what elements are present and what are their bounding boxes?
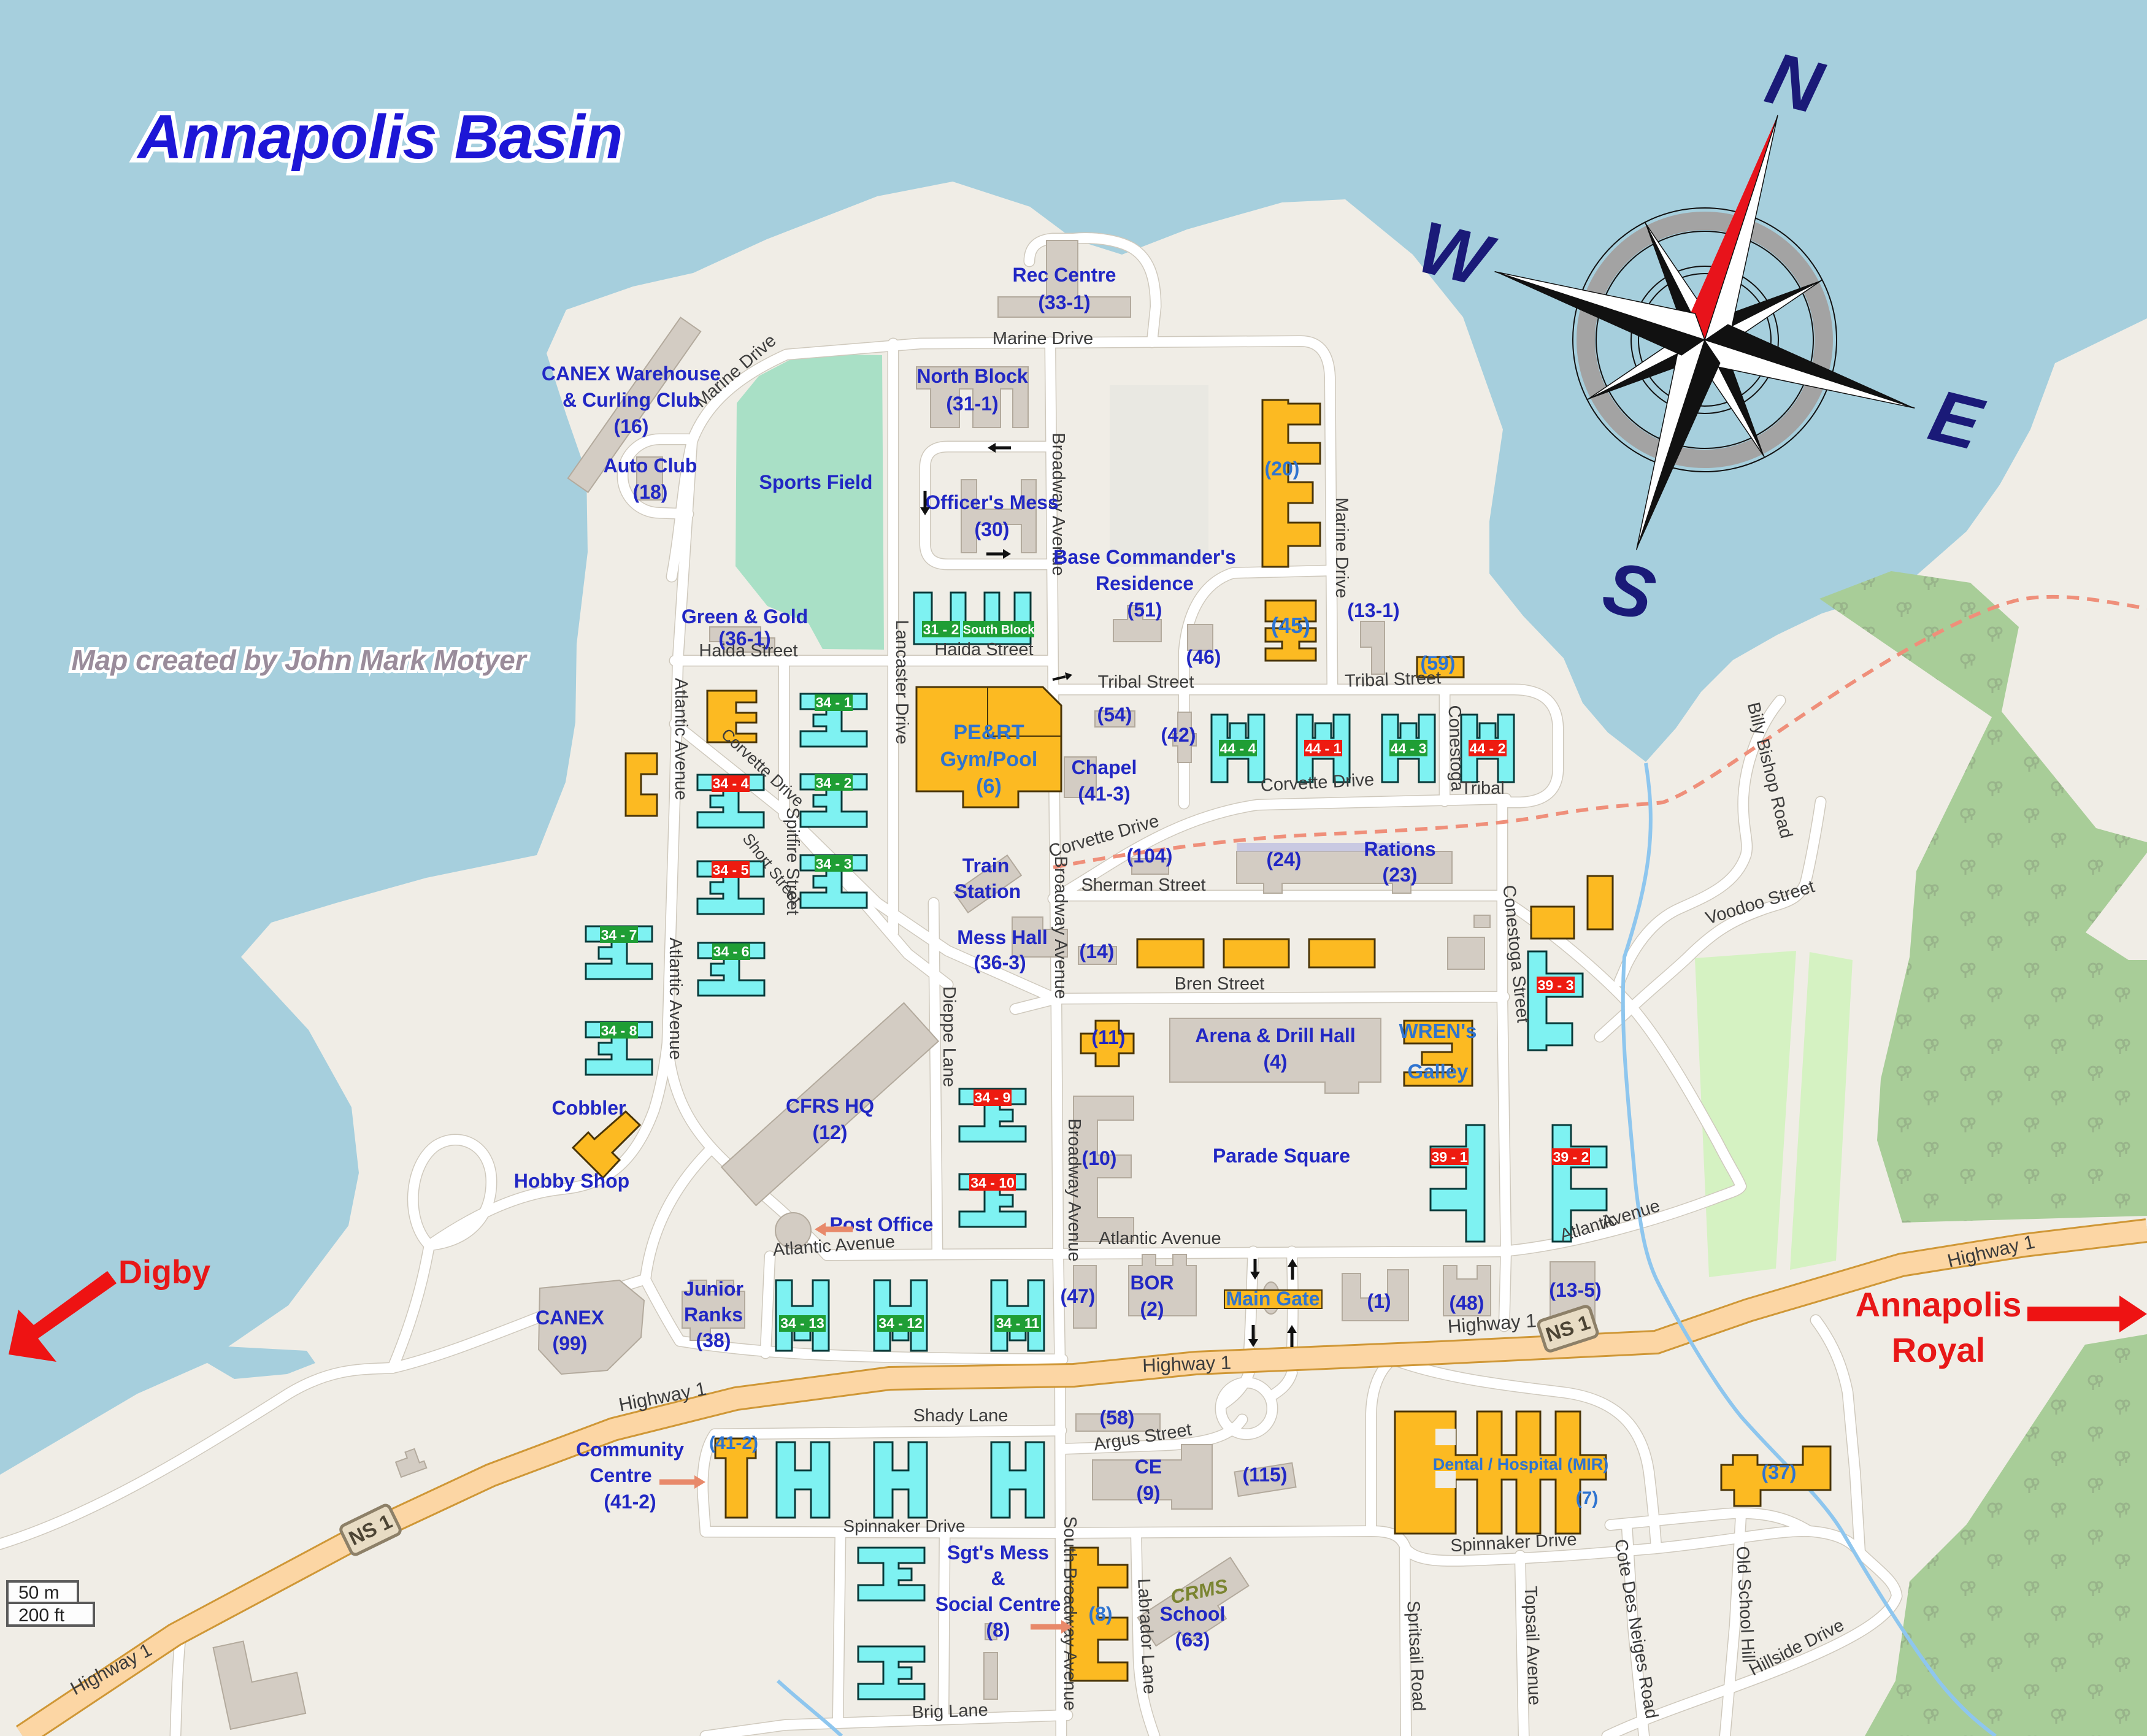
svg-text:(46): (46): [1186, 646, 1221, 668]
svg-text:(41-3): (41-3): [1078, 783, 1130, 805]
svg-text:(37): (37): [1762, 1461, 1797, 1483]
svg-text:34 - 10: 34 - 10: [970, 1175, 1015, 1191]
svg-text:(16): (16): [614, 415, 649, 437]
svg-text:(6): (6): [976, 775, 1002, 798]
svg-text:(7): (7): [1576, 1488, 1599, 1508]
svg-text:34 - 4: 34 - 4: [713, 775, 749, 791]
svg-text:(23): (23): [1383, 864, 1418, 886]
svg-text:39 - 3: 39 - 3: [1538, 977, 1574, 993]
svg-text:Parade Square: Parade Square: [1213, 1145, 1350, 1167]
svg-text:(13-1): (13-1): [1347, 599, 1399, 621]
svg-text:39 - 2: 39 - 2: [1553, 1149, 1589, 1165]
svg-text:Junior: Junior: [683, 1278, 743, 1300]
svg-text:(36-1): (36-1): [718, 628, 770, 650]
svg-text:(51): (51): [1127, 599, 1162, 621]
svg-text:Tribal: Tribal: [1461, 778, 1504, 798]
svg-text:44 - 1: 44 - 1: [1305, 740, 1342, 756]
svg-text:(99): (99): [553, 1332, 588, 1354]
svg-text:(18): (18): [633, 481, 668, 503]
svg-text:Gym/Pool: Gym/Pool: [940, 748, 1038, 771]
svg-text:Atlantic Avenue: Atlantic Avenue: [671, 678, 691, 800]
svg-text:(30): (30): [975, 518, 1010, 540]
svg-text:Broadway Avenue: Broadway Avenue: [1064, 1118, 1084, 1261]
svg-text:(41-2): (41-2): [709, 1433, 758, 1453]
svg-text:Highway 1: Highway 1: [1142, 1351, 1232, 1376]
svg-text:Residence: Residence: [1096, 572, 1194, 594]
svg-text:Main Gate: Main Gate: [1226, 1288, 1320, 1310]
svg-text:Rations: Rations: [1364, 838, 1435, 860]
svg-text:(13-5): (13-5): [1549, 1279, 1601, 1301]
svg-text:Ranks: Ranks: [684, 1304, 743, 1326]
svg-text:Broadway Avenue: Broadway Avenue: [1051, 856, 1070, 999]
svg-text:Annapolis Basin: Annapolis Basin: [136, 103, 623, 172]
svg-text:Sherman Street: Sherman Street: [1081, 875, 1205, 895]
svg-text:& Curling Club: & Curling Club: [563, 389, 700, 411]
svg-text:Auto Club: Auto Club: [604, 455, 697, 477]
svg-text:(4): (4): [1263, 1051, 1287, 1073]
svg-text:50 m: 50 m: [18, 1583, 60, 1603]
svg-text:Social Centre: Social Centre: [935, 1593, 1061, 1615]
svg-text:(36-3): (36-3): [974, 951, 1026, 974]
svg-text:Station: Station: [954, 880, 1021, 902]
svg-text:(24): (24): [1267, 848, 1302, 870]
svg-text:Tribal Street: Tribal Street: [1098, 672, 1194, 692]
svg-text:(8): (8): [986, 1619, 1010, 1641]
svg-text:(41-2): (41-2): [604, 1491, 656, 1513]
svg-text:39 - 1: 39 - 1: [1432, 1149, 1468, 1165]
svg-text:Dental / Hospital (MIR): Dental / Hospital (MIR): [1433, 1455, 1609, 1473]
svg-text:CE: CE: [1135, 1456, 1162, 1478]
svg-text:200 ft: 200 ft: [18, 1605, 65, 1626]
svg-text:North Block: North Block: [916, 365, 1028, 387]
svg-text:Atlantic Avenue: Atlantic Avenue: [666, 937, 685, 1059]
svg-text:(63): (63): [1175, 1629, 1210, 1651]
svg-text:(2): (2): [1140, 1298, 1164, 1320]
svg-text:Green & Gold: Green & Gold: [682, 605, 808, 628]
svg-text:34 - 9: 34 - 9: [975, 1089, 1011, 1105]
svg-text:(47): (47): [1061, 1285, 1096, 1307]
svg-text:Mess Hall: Mess Hall: [957, 926, 1048, 948]
svg-text:Spinnaker Drive: Spinnaker Drive: [843, 1516, 965, 1535]
svg-text:&: &: [991, 1567, 1005, 1589]
svg-text:South Broadway Avenue: South Broadway Avenue: [1060, 1516, 1080, 1710]
svg-text:Haida Street: Haida Street: [934, 640, 1033, 659]
svg-text:CANEX Warehouse: CANEX Warehouse: [542, 363, 721, 385]
svg-text:Marine Drive: Marine Drive: [993, 329, 1093, 348]
svg-text:34 - 2: 34 - 2: [816, 775, 852, 791]
svg-text:South Block: South Block: [963, 623, 1035, 637]
svg-text:44 - 4: 44 - 4: [1220, 740, 1256, 756]
svg-text:Sgt's Mess: Sgt's Mess: [947, 1542, 1049, 1564]
svg-text:Lancaster Drive: Lancaster Drive: [892, 620, 912, 744]
svg-text:(58): (58): [1100, 1407, 1135, 1429]
svg-text:Train: Train: [962, 855, 1009, 877]
svg-text:(8): (8): [1088, 1603, 1112, 1625]
svg-text:Centre: Centre: [590, 1464, 651, 1486]
svg-text:34 - 1: 34 - 1: [816, 694, 852, 710]
svg-text:(20): (20): [1265, 458, 1300, 480]
svg-text:(10): (10): [1082, 1147, 1117, 1169]
svg-text:PE&RT: PE&RT: [953, 721, 1024, 744]
svg-text:(42): (42): [1161, 724, 1196, 746]
svg-text:Atlantic Avenue: Atlantic Avenue: [1099, 1229, 1221, 1248]
svg-text:Digby: Digby: [118, 1254, 210, 1291]
svg-text:CANEX: CANEX: [536, 1307, 605, 1329]
svg-text:(14): (14): [1080, 940, 1115, 962]
svg-text:(11): (11): [1091, 1026, 1125, 1048]
svg-text:Brig Lane: Brig Lane: [912, 1700, 988, 1723]
svg-text:(9): (9): [1136, 1482, 1160, 1504]
svg-text:Dieppe Lane: Dieppe Lane: [939, 986, 959, 1087]
svg-text:Rec Centre: Rec Centre: [1013, 264, 1116, 286]
svg-text:Shady Lane: Shady Lane: [913, 1406, 1008, 1426]
svg-text:Hobby Shop: Hobby Shop: [514, 1170, 629, 1192]
svg-text:Galley: Galley: [1407, 1060, 1469, 1083]
svg-text:Cobbler: Cobbler: [552, 1097, 626, 1119]
svg-text:Sports Field: Sports Field: [759, 471, 873, 493]
svg-text:(48): (48): [1450, 1292, 1484, 1314]
svg-text:Arena & Drill Hall: Arena & Drill Hall: [1195, 1024, 1355, 1047]
svg-text:(12): (12): [813, 1121, 848, 1143]
svg-text:34 - 12: 34 - 12: [878, 1315, 923, 1331]
svg-text:(115): (115): [1243, 1464, 1288, 1486]
svg-text:WREN's: WREN's: [1399, 1020, 1477, 1042]
svg-text:Royal: Royal: [1892, 1331, 1986, 1369]
svg-text:(1): (1): [1367, 1290, 1391, 1312]
svg-text:(33-1): (33-1): [1038, 291, 1090, 313]
svg-text:BOR: BOR: [1130, 1272, 1173, 1294]
svg-text:(38): (38): [696, 1329, 731, 1351]
svg-text:(31-1): (31-1): [946, 393, 998, 415]
svg-text:Marine Drive: Marine Drive: [1332, 497, 1351, 598]
svg-text:Community: Community: [576, 1438, 684, 1461]
svg-text:(104): (104): [1127, 845, 1173, 867]
svg-text:44 - 3: 44 - 3: [1391, 740, 1427, 756]
svg-text:34 - 13: 34 - 13: [780, 1315, 824, 1331]
svg-text:34 - 7: 34 - 7: [601, 927, 637, 943]
svg-text:34 - 8: 34 - 8: [601, 1023, 637, 1039]
svg-text:(54): (54): [1097, 704, 1132, 726]
svg-text:Map created by John Mark Motye: Map created by John Mark Motyer: [71, 644, 527, 676]
svg-text:Officer's Mess: Officer's Mess: [925, 491, 1058, 513]
svg-text:34 - 6: 34 - 6: [713, 943, 750, 959]
svg-text:(59): (59): [1421, 652, 1456, 674]
svg-text:Chapel: Chapel: [1072, 756, 1137, 778]
svg-text:34 - 5: 34 - 5: [713, 862, 749, 878]
svg-text:CFRS HQ: CFRS HQ: [786, 1095, 874, 1117]
svg-text:Post Office: Post Office: [830, 1213, 934, 1235]
svg-text:Topsail Avenue: Topsail Avenue: [1521, 1586, 1545, 1706]
svg-text:44 - 2: 44 - 2: [1470, 740, 1506, 756]
svg-text:School: School: [1160, 1603, 1226, 1625]
svg-text:Annapolis: Annapolis: [1856, 1285, 2022, 1324]
svg-text:31 - 2: 31 - 2: [923, 621, 959, 637]
svg-text:(45): (45): [1271, 613, 1310, 638]
svg-text:Bren Street: Bren Street: [1175, 974, 1265, 994]
svg-text:34 - 3: 34 - 3: [816, 856, 852, 872]
svg-text:34 - 11: 34 - 11: [996, 1315, 1040, 1331]
svg-text:Base Commander's: Base Commander's: [1053, 546, 1236, 568]
